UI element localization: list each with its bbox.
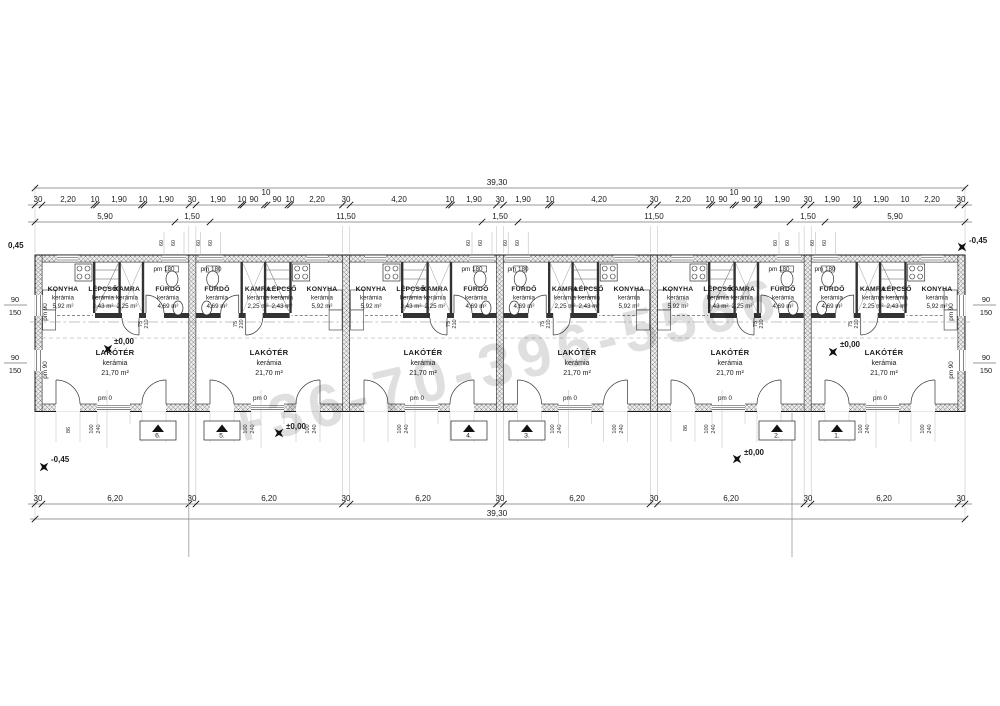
room-name: KONYHA [48, 286, 79, 293]
room-material: kerámia [772, 295, 795, 302]
room-material: kerámia [926, 295, 949, 302]
dim: 30 [804, 494, 813, 503]
dim: 10 [706, 195, 715, 204]
dim: 90 [982, 353, 990, 362]
dim: 240 [865, 424, 871, 433]
dim: 90 [742, 195, 751, 204]
dim: 60 [171, 240, 177, 246]
dim: 30 [188, 195, 197, 204]
room-name: KONYHA [614, 286, 645, 293]
dim: 210 [546, 319, 552, 328]
room-material: kerámia [92, 295, 115, 302]
room-area: 4,69 m² [158, 303, 179, 310]
level-value: ±0,00 [744, 448, 765, 457]
dim: 90 [273, 195, 282, 204]
dim: 90 [719, 195, 728, 204]
level-star-icon [954, 239, 971, 256]
dim: 6,20 [723, 494, 739, 503]
dim: 11,50 [644, 212, 664, 221]
room-material: kerámia [116, 295, 139, 302]
dim: 1,50 [800, 212, 816, 221]
pm-label: pm 180 [461, 266, 483, 273]
room-name: LAKÓTÉR [558, 348, 597, 357]
dim: 90 [982, 295, 990, 304]
dim: 4,20 [591, 195, 607, 204]
dim: 10 [91, 195, 100, 204]
pm-label: pm 90 [948, 361, 955, 379]
pm-label: pm 90 [42, 303, 49, 321]
dim: 10 [262, 188, 271, 197]
room-material: kerámia [513, 295, 536, 302]
dim: 90 [11, 353, 19, 362]
dim: 210 [854, 319, 860, 328]
dim: 2,20 [675, 195, 691, 204]
dim: 240 [404, 424, 410, 433]
dim: 10 [730, 188, 739, 197]
unit-number: 4. [466, 433, 472, 440]
pm-label: pm 180 [768, 266, 790, 273]
room-area: 4,69 m² [514, 303, 535, 310]
room-name: FÜRDŐ [463, 284, 488, 293]
dim: 1,50 [492, 212, 508, 221]
dim: 240 [619, 424, 625, 433]
dim: 100 [397, 424, 403, 433]
dim: 100 [612, 424, 618, 433]
dim: 1,90 [210, 195, 226, 204]
dim: 240 [96, 424, 102, 433]
dim: 60 [503, 240, 509, 246]
room-area: 4,69 m² [822, 303, 843, 310]
dim: 6,20 [569, 494, 585, 503]
pm-label: pm 0 [410, 395, 424, 402]
level-value: ±0,00 [840, 340, 861, 349]
room-material: kerámia [157, 295, 180, 302]
room-material: kerámia [578, 295, 601, 302]
dim: 60 [208, 240, 214, 246]
dim: 210 [144, 319, 150, 328]
dim: 10 [446, 195, 455, 204]
dim: 30 [342, 494, 351, 503]
room-area: 5,92 m² [619, 303, 640, 310]
room-material: kerámia [667, 295, 690, 302]
level-value: -0,45 [51, 455, 70, 464]
room-area: 2,25 m² [732, 303, 753, 310]
room-area: 5,92 m² [361, 303, 382, 310]
room-material: kerámia [411, 360, 436, 367]
room-material: kerámia [886, 295, 909, 302]
pm-label: pm 90 [948, 303, 955, 321]
room-name: FÜRDŐ [155, 284, 180, 293]
room-material: kerámia [718, 360, 743, 367]
dim: 100 [550, 424, 556, 433]
pm-label: pm 0 [98, 395, 112, 402]
room-name: KONYHA [307, 286, 338, 293]
dim: 60 [810, 240, 816, 246]
room-area: 21,70 m² [870, 370, 898, 377]
room-name: LAKÓTÉR [250, 348, 289, 357]
top-dimension-labels: 39,30 30 2,20 10 1,90 10 1,90 30 1,90 10… [34, 178, 966, 221]
room-area: 2,25 m² [117, 303, 138, 310]
dim: 30 [34, 195, 43, 204]
dim: 150 [9, 366, 21, 375]
dim: 240 [711, 424, 717, 433]
room-material: kerámia [554, 295, 577, 302]
dim: 1,90 [466, 195, 482, 204]
dim: 30 [342, 195, 351, 204]
dim: 90 [11, 295, 19, 304]
dim: 240 [250, 424, 256, 433]
dim: 210 [452, 319, 458, 328]
dim: 10 [546, 195, 555, 204]
dim: 60 [773, 240, 779, 246]
dim: 60 [822, 240, 828, 246]
room-area: 4,69 m² [773, 303, 794, 310]
room-material: kerámia [465, 295, 488, 302]
dim: 1,90 [515, 195, 531, 204]
dim: 86 [683, 425, 689, 431]
floor-plan-page: +36-70-396-5566 39,30 30 2,20 10 1,90 10… [0, 0, 1000, 706]
floor-plan-drawing: +36-70-396-5566 39,30 30 2,20 10 1,90 10… [0, 0, 1000, 706]
dim: 2,20 [309, 195, 325, 204]
room-material: kerámia [707, 295, 730, 302]
room-name: FÜRDŐ [204, 284, 229, 293]
unit-number: 1. [834, 433, 840, 440]
dim: 1,90 [824, 195, 840, 204]
dim: 4,20 [391, 195, 407, 204]
room-name: LAKÓTÉR [96, 348, 135, 357]
room-material: kerámia [103, 360, 128, 367]
bath-window-dims: 60 60 60 60 60 60 60 60 60 60 60 60 [159, 240, 828, 246]
bottom-dimension-labels: 30 6,20 30 6,20 30 6,20 30 6,20 30 6,20 … [34, 494, 966, 518]
dim: 100 [704, 424, 710, 433]
unit-top-geometry [196, 232, 343, 335]
dim: 30 [188, 494, 197, 503]
room-name: FÜRDŐ [819, 284, 844, 293]
pm-label: pm 180 [814, 266, 836, 273]
room-material: kerámia [271, 295, 294, 302]
dim: 30 [957, 494, 966, 503]
room-material: kerámia [257, 360, 282, 367]
pm-label: pm 180 [200, 266, 222, 273]
level-star-icon [729, 451, 746, 468]
room-area: 5,92 m² [312, 303, 333, 310]
dim: 60 [478, 240, 484, 246]
room-name: LÉPCSŐ [267, 284, 296, 293]
unit-number: 2. [774, 433, 780, 440]
pm-label: pm 0 [873, 395, 887, 402]
room-area: 2,25 m² [425, 303, 446, 310]
level-value: ±0,00 [114, 337, 135, 346]
room-area: 4,69 m² [207, 303, 228, 310]
level-value: 0,45 [8, 241, 24, 250]
room-area: 2,25 m² [863, 303, 884, 310]
level-value: -0,45 [969, 236, 988, 245]
pm-label: pm 0 [253, 395, 267, 402]
dim: 2,20 [924, 195, 940, 204]
dim: 1,90 [774, 195, 790, 204]
dim: 100 [89, 424, 95, 433]
dim: 1,90 [158, 195, 174, 204]
dim: 10 [754, 195, 763, 204]
dim: 10 [238, 195, 247, 204]
dim: 30 [496, 494, 505, 503]
room-area: 5,92 m² [668, 303, 689, 310]
dim: 1,90 [111, 195, 127, 204]
dim: 30 [957, 195, 966, 204]
room-name: KONYHA [663, 286, 694, 293]
dim: 60 [196, 240, 202, 246]
dim-total-bottom: 39,30 [487, 509, 508, 518]
dim: 30 [650, 195, 659, 204]
room-material: kerámia [311, 295, 334, 302]
room-area: 4,69 m² [466, 303, 487, 310]
dim: 10 [139, 195, 148, 204]
room-area: 21,70 m² [563, 370, 591, 377]
dim: 150 [980, 308, 992, 317]
room-name: FÜRDŐ [770, 284, 795, 293]
dim: 6,20 [261, 494, 277, 503]
dim: 100 [920, 424, 926, 433]
dim: 100 [243, 424, 249, 433]
room-name: LAKÓTÉR [711, 348, 750, 357]
dim: 2,20 [60, 195, 76, 204]
dim: 90 [250, 195, 259, 204]
room-area: 2,43 m² [272, 303, 293, 310]
dim: 240 [312, 424, 318, 433]
room-material: kerámia [206, 295, 229, 302]
room-material: kerámia [731, 295, 754, 302]
room-area: 21,70 m² [255, 370, 283, 377]
room-name: LAKÓTÉR [404, 348, 443, 357]
room-material: kerámia [400, 295, 423, 302]
room-material: kerámia [821, 295, 844, 302]
room-material: kerámia [862, 295, 885, 302]
room-name: LÉPCSŐ [574, 284, 603, 293]
unit-number: 5. [219, 433, 225, 440]
room-area: 5,92 m² [53, 303, 74, 310]
room-material: kerámia [424, 295, 447, 302]
dim: 10 [286, 195, 295, 204]
dim: 60 [466, 240, 472, 246]
unit-top-geometry [350, 232, 497, 335]
level-star-icon [36, 459, 53, 476]
room-material: kerámia [52, 295, 75, 302]
dim: 30 [650, 494, 659, 503]
dim-total-top: 39,30 [487, 178, 508, 187]
pm-label: pm 180 [507, 266, 529, 273]
dim: 210 [759, 319, 765, 328]
room-name: KAMRA [729, 286, 755, 293]
unit-top-geometry [42, 232, 189, 335]
unit-top-geometry [811, 232, 958, 335]
dim: 5,90 [887, 212, 903, 221]
room-area: 2,43 m² [708, 303, 729, 310]
dim: 86 [66, 427, 72, 433]
unit-number: 6. [155, 433, 161, 440]
dim: 5,90 [97, 212, 113, 221]
room-area: 2,43 m² [401, 303, 422, 310]
dim: 60 [515, 240, 521, 246]
dim: 11,50 [336, 212, 356, 221]
room-area: 21,70 m² [716, 370, 744, 377]
dim: 10 [853, 195, 862, 204]
dim: 6,20 [876, 494, 892, 503]
level-star-icon [825, 344, 842, 361]
pm-label: pm 0 [718, 395, 732, 402]
room-material: kerámia [247, 295, 270, 302]
dim: 60 [159, 240, 165, 246]
dim: 60 [785, 240, 791, 246]
pm-label: pm 0 [563, 395, 577, 402]
level-value: ±0,00 [286, 422, 307, 431]
room-area: 2,25 m² [248, 303, 269, 310]
dim: 30 [496, 195, 505, 204]
dim: 100 [858, 424, 864, 433]
room-area: 5,92 m² [927, 303, 948, 310]
room-name: KONYHA [922, 286, 953, 293]
dim: 10 [901, 195, 910, 204]
dim: 1,50 [184, 212, 200, 221]
room-area: 21,70 m² [101, 370, 129, 377]
room-name: LÉPCSŐ [882, 284, 911, 293]
pm-label: pm 90 [42, 361, 49, 379]
room-material: kerámia [618, 295, 641, 302]
room-name: FÜRDŐ [511, 284, 536, 293]
room-area: 2,43 m² [93, 303, 114, 310]
dim: 210 [239, 319, 245, 328]
room-name: KAMRA [422, 286, 448, 293]
room-name: KAMRA [114, 286, 140, 293]
dim: 30 [34, 494, 43, 503]
dim: 150 [980, 366, 992, 375]
room-area: 21,70 m² [409, 370, 437, 377]
room-name: KONYHA [356, 286, 387, 293]
room-material: kerámia [872, 360, 897, 367]
dim: 1,90 [873, 195, 889, 204]
dim: 30 [804, 195, 813, 204]
room-area: 2,25 m² [555, 303, 576, 310]
room-area: 2,43 m² [887, 303, 908, 310]
room-area: 2,43 m² [579, 303, 600, 310]
dim: 6,20 [415, 494, 431, 503]
dim: 240 [557, 424, 563, 433]
dim: 6,20 [107, 494, 123, 503]
unit-number: 3. [524, 433, 530, 440]
dim: 150 [9, 308, 21, 317]
pm-label: pm 180 [153, 266, 175, 273]
room-name: LAKÓTÉR [865, 348, 904, 357]
dim: 240 [927, 424, 933, 433]
room-material: kerámia [360, 295, 383, 302]
room-material: kerámia [565, 360, 590, 367]
